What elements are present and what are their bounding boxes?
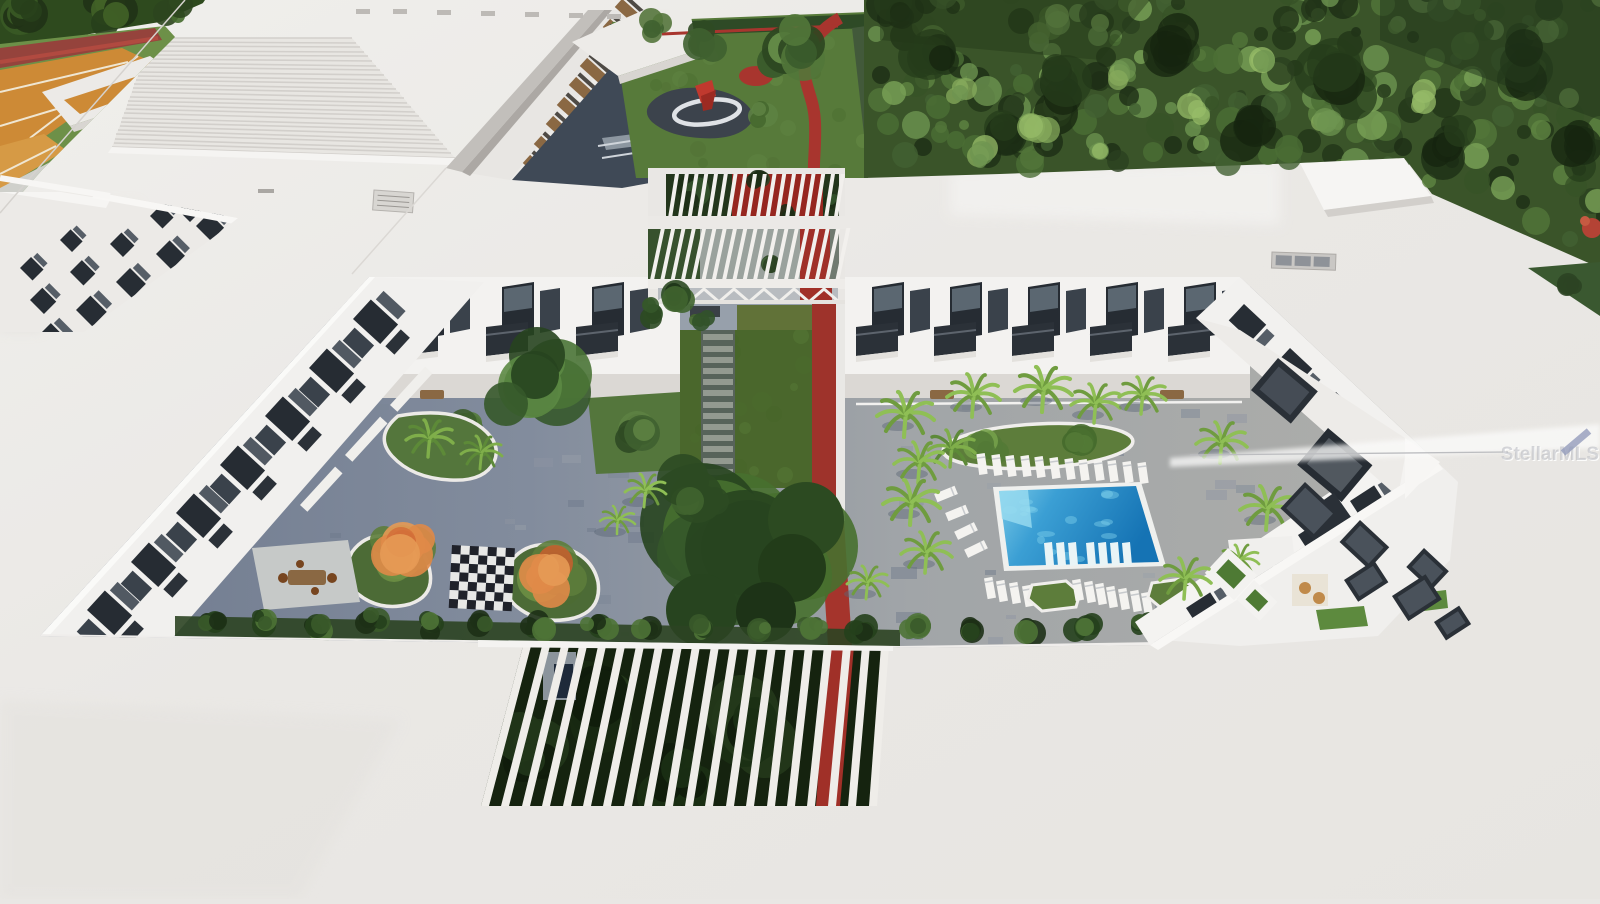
svg-text:StellarMLS: StellarMLS bbox=[1501, 444, 1599, 465]
